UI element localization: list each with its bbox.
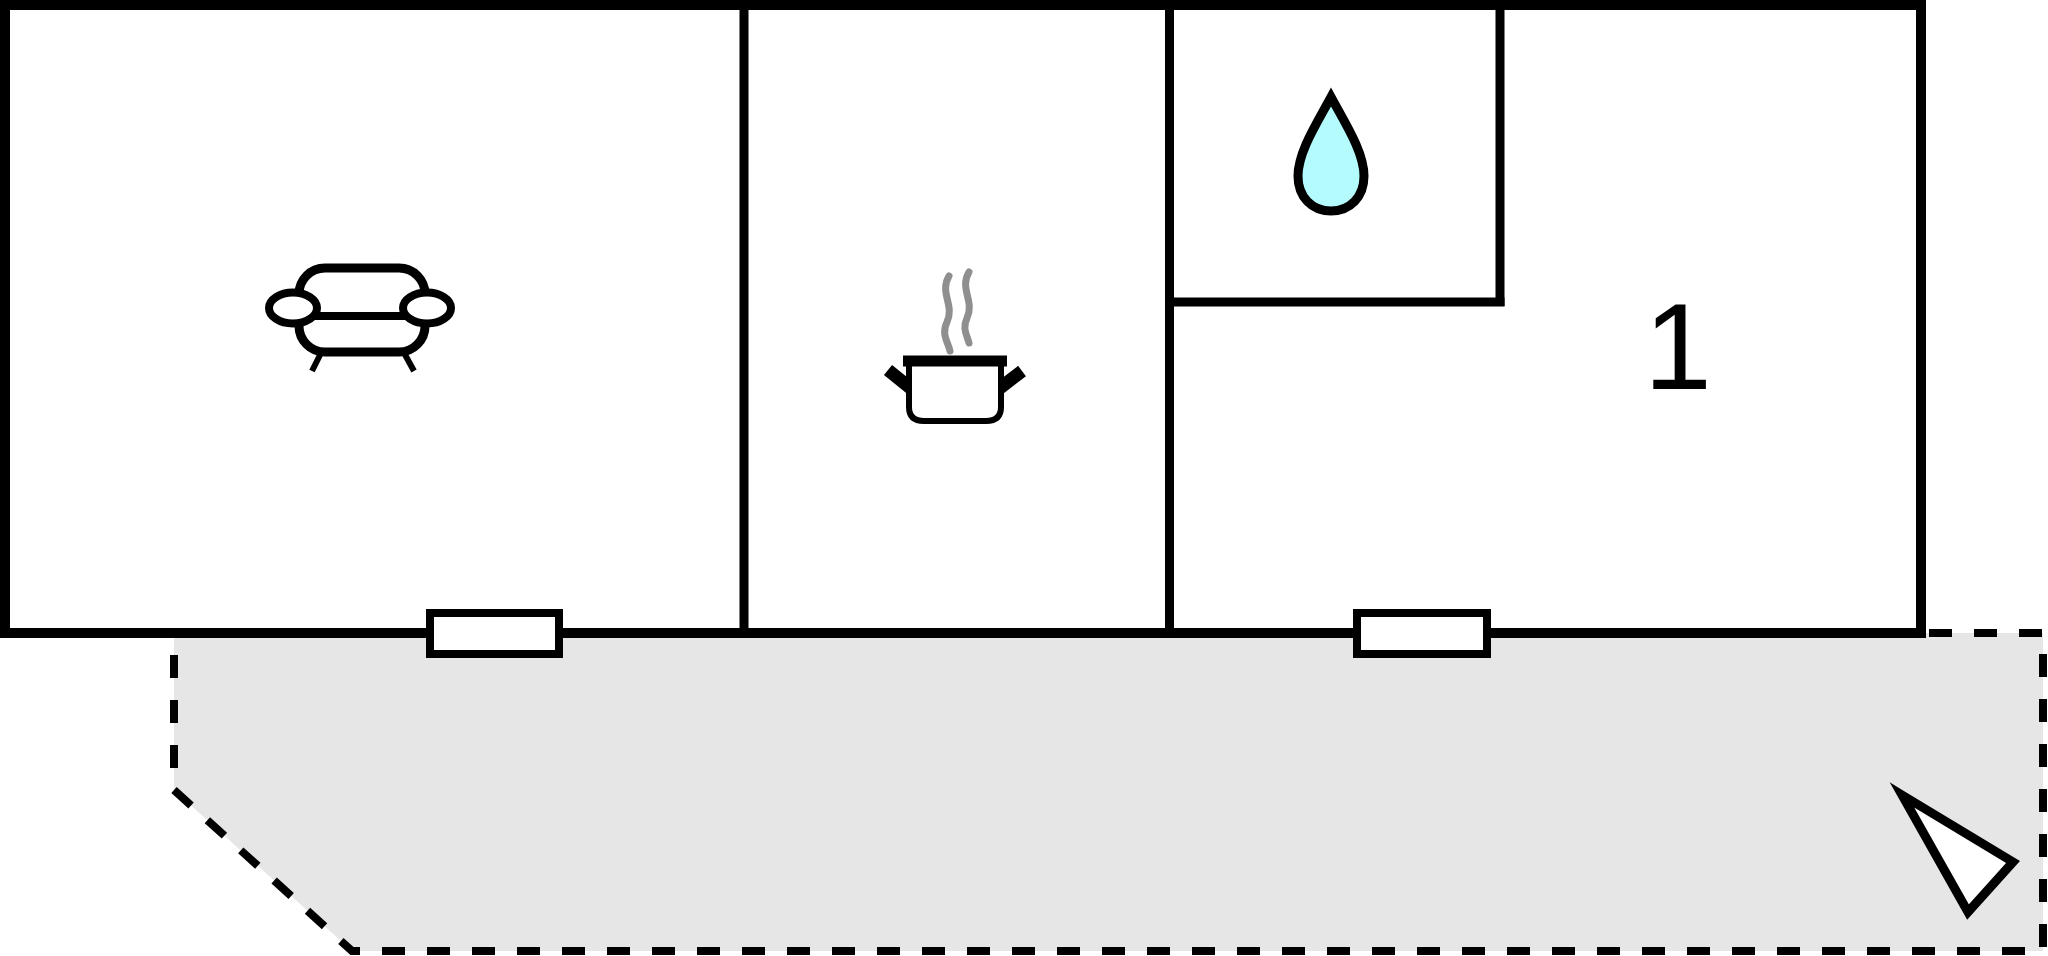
door-hallway: [1357, 613, 1487, 654]
door-living-room: [430, 613, 559, 654]
bedroom-number-label: 1: [1644, 279, 1712, 415]
floor-plan: 1: [0, 0, 2048, 956]
terrace-area: [174, 633, 2043, 951]
pot-body: [909, 361, 1001, 421]
